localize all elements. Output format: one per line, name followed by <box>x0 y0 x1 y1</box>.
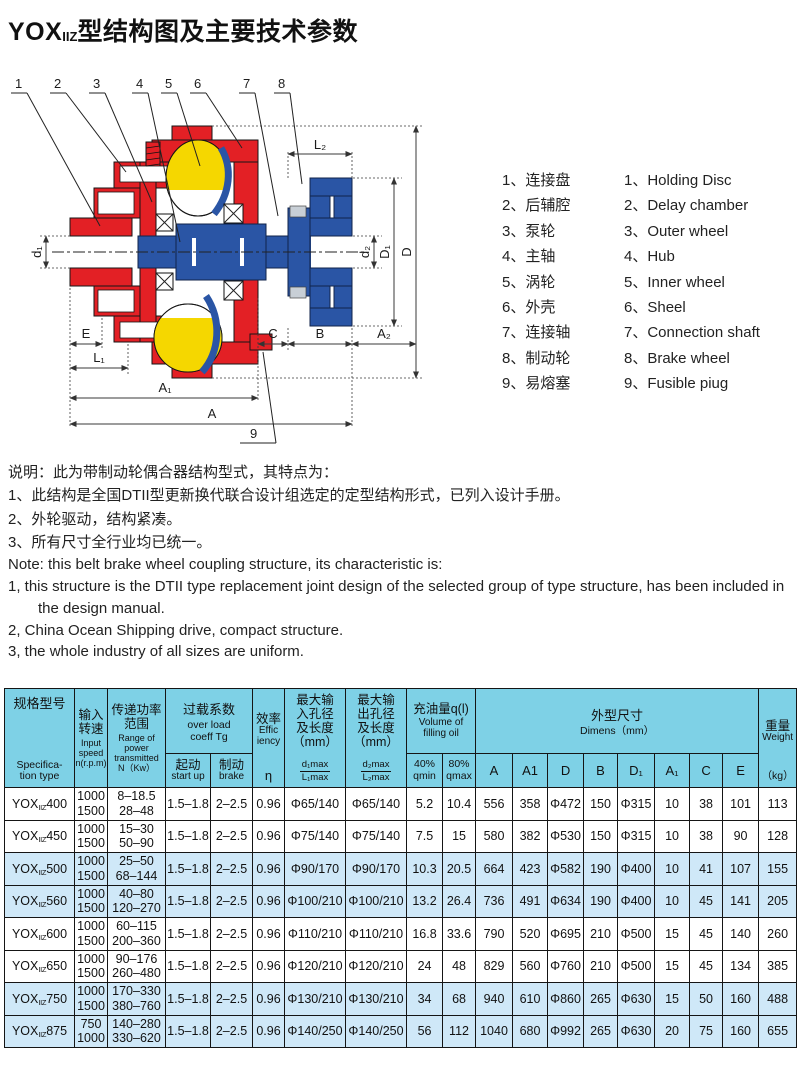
data-cell: 40–80 120–270 <box>108 885 166 918</box>
data-cell: 210 <box>584 950 618 983</box>
data-cell: 190 <box>584 885 618 918</box>
subcol-dim-C: C <box>690 754 723 788</box>
data-cell: Φ65/140 <box>285 788 346 821</box>
data-cell: 8–18.5 28–48 <box>108 788 166 821</box>
callout-5: 5 <box>165 76 172 91</box>
model-cell: YOXIIZ450 <box>5 820 75 853</box>
col-header-oil-volume: 充油量q(l)Volume of filling oil <box>407 689 476 754</box>
data-cell: 488 <box>759 983 797 1016</box>
data-cell: 1.5–1.8 <box>166 983 211 1016</box>
data-cell: 2–2.5 <box>211 788 253 821</box>
legend-grid: 1、连接盘1、Holding Disc2、后辅腔2、Delay chamber3… <box>502 169 798 398</box>
data-cell: 2–2.5 <box>211 983 253 1016</box>
callout-2: 2 <box>54 76 61 91</box>
note-en-line: Note: this belt brake wheel coupling str… <box>8 554 796 576</box>
data-cell: Φ110/210 <box>285 918 346 951</box>
data-cell: 260 <box>759 918 797 951</box>
subcol-brake: 制动brake <box>211 754 253 788</box>
data-cell: 107 <box>723 853 759 886</box>
table-row: YOXIIZ4001000 15008–18.5 28–481.5–1.82–2… <box>5 788 797 821</box>
model-cell: YOXIIZ875 <box>5 1015 75 1048</box>
data-cell: 1000 1500 <box>75 918 108 951</box>
data-cell: Φ100/210 <box>346 885 407 918</box>
dim-label-D1: D₁ <box>377 245 392 259</box>
callout-7: 7 <box>243 76 250 91</box>
data-cell: 140 <box>723 918 759 951</box>
note-zh-line: 说明：此为带制动轮偶合器结构型式，其特点为： <box>8 461 796 484</box>
data-cell: Φ630 <box>618 983 655 1016</box>
data-cell: 556 <box>476 788 513 821</box>
legend-item-zh: 1、连接盘 <box>502 169 624 194</box>
table-row: YOXIIZ5601000 150040–80 120–2701.5–1.82–… <box>5 885 797 918</box>
data-cell: 1.5–1.8 <box>166 820 211 853</box>
data-cell: 5.2 <box>407 788 443 821</box>
data-cell: 141 <box>723 885 759 918</box>
data-cell: Φ860 <box>548 983 584 1016</box>
data-cell: 155 <box>759 853 797 886</box>
data-cell: Φ760 <box>548 950 584 983</box>
data-cell: 25–50 68–144 <box>108 853 166 886</box>
data-cell: 1000 1500 <box>75 885 108 918</box>
note-zh-line: 3、所有尺寸全行业均已统一。 <box>8 531 796 554</box>
page-title: YOXIIZ型结构图及主要技术参数 <box>8 12 358 48</box>
data-cell: 13.2 <box>407 885 443 918</box>
data-cell: 0.96 <box>253 983 285 1016</box>
subcol-dim-A1: A1 <box>513 754 548 788</box>
data-cell: 664 <box>476 853 513 886</box>
data-cell: 34 <box>407 983 443 1016</box>
data-cell: 190 <box>584 853 618 886</box>
data-cell: Φ500 <box>618 950 655 983</box>
data-cell: 0.96 <box>253 853 285 886</box>
data-cell: 15 <box>655 983 690 1016</box>
data-cell: Φ400 <box>618 853 655 886</box>
legend-item-zh: 5、涡轮 <box>502 271 624 296</box>
data-cell: 829 <box>476 950 513 983</box>
data-cell: 38 <box>690 788 723 821</box>
model-cell: YOXIIZ400 <box>5 788 75 821</box>
legend-item-zh: 2、后辅腔 <box>502 194 624 219</box>
callout-3: 3 <box>93 76 100 91</box>
data-cell: 10 <box>655 853 690 886</box>
data-cell: Φ500 <box>618 918 655 951</box>
model-cell: YOXIIZ750 <box>5 983 75 1016</box>
data-cell: 15 <box>655 918 690 951</box>
data-cell: 50 <box>690 983 723 1016</box>
data-cell: 0.96 <box>253 885 285 918</box>
data-cell: Φ695 <box>548 918 584 951</box>
legend-item-en: 6、Sheel <box>624 296 798 321</box>
data-cell: 48 <box>443 950 476 983</box>
data-cell: 150 <box>584 788 618 821</box>
data-cell: 45 <box>690 950 723 983</box>
subcol-oil-80: 80% qmax <box>443 754 476 788</box>
data-cell: 610 <box>513 983 548 1016</box>
data-cell: 680 <box>513 1015 548 1048</box>
table-row: YOXIIZ7501000 1500170–330 380–7601.5–1.8… <box>5 983 797 1016</box>
data-cell: 10.4 <box>443 788 476 821</box>
data-cell: 1.5–1.8 <box>166 788 211 821</box>
data-cell: 382 <box>513 820 548 853</box>
data-cell: 38 <box>690 820 723 853</box>
dim-label-D: D <box>399 247 414 256</box>
data-cell: 15 <box>443 820 476 853</box>
data-cell: 265 <box>584 1015 618 1048</box>
data-cell: Φ630 <box>618 1015 655 1048</box>
dim-label-A: A <box>208 406 217 421</box>
data-cell: 7.5 <box>407 820 443 853</box>
data-cell: 1000 1500 <box>75 983 108 1016</box>
subcol-start: 起动start up <box>166 754 211 788</box>
data-cell: Φ130/210 <box>285 983 346 1016</box>
legend-item-en: 9、Fusible piug <box>624 372 798 397</box>
data-cell: 101 <box>723 788 759 821</box>
coupling-diagram-svg: d₁ L₂ d₂ D₁ D E C B A₂ L₁ A₁ A 1 2 3 4 5… <box>0 66 500 464</box>
data-cell: 90–176 260–480 <box>108 950 166 983</box>
data-cell: 560 <box>513 950 548 983</box>
data-cell: 385 <box>759 950 797 983</box>
data-cell: Φ90/170 <box>346 853 407 886</box>
dim-label-d1: d₁ <box>29 246 44 258</box>
data-cell: Φ120/210 <box>285 950 346 983</box>
data-cell: 1000 1500 <box>75 820 108 853</box>
legend-item-en: 7、Connection shaft <box>624 321 798 346</box>
col-header-max-output-bore: 最大输 出孔径 及长度 （mm）d₂maxL₂max <box>346 689 407 788</box>
oil-chamber-bottom <box>154 296 222 372</box>
data-cell: 358 <box>513 788 548 821</box>
table-row: YOXIIZ5001000 150025–50 68–1441.5–1.82–2… <box>5 853 797 886</box>
model-cell: YOXIIZ650 <box>5 950 75 983</box>
col-header-weight: 重量Weight（kg） <box>759 689 797 788</box>
data-cell: 940 <box>476 983 513 1016</box>
data-cell: 15 <box>655 950 690 983</box>
data-cell: 24 <box>407 950 443 983</box>
data-cell: 56 <box>407 1015 443 1048</box>
data-cell: Φ75/140 <box>285 820 346 853</box>
title-subscript: IIZ <box>62 29 77 44</box>
model-cell: YOXIIZ500 <box>5 853 75 886</box>
data-cell: Φ400 <box>618 885 655 918</box>
data-cell: Φ65/140 <box>346 788 407 821</box>
dim-label-C: C <box>268 326 277 341</box>
data-cell: 491 <box>513 885 548 918</box>
data-cell: 423 <box>513 853 548 886</box>
data-cell: 2–2.5 <box>211 853 253 886</box>
data-cell: Φ315 <box>618 820 655 853</box>
model-cell: YOXIIZ600 <box>5 918 75 951</box>
dim-label-d2: d₂ <box>357 246 372 258</box>
callout-6: 6 <box>194 76 201 91</box>
subcol-dim-D: D <box>548 754 584 788</box>
table-row: YOXIIZ6501000 150090–176 260–4801.5–1.82… <box>5 950 797 983</box>
data-cell: 10 <box>655 885 690 918</box>
table-row: YOXIIZ875750 1000140–280 330–6201.5–1.82… <box>5 1015 797 1048</box>
data-cell: 1.5–1.8 <box>166 1015 211 1048</box>
data-cell: 10 <box>655 788 690 821</box>
subcol-dim-A: A <box>476 754 513 788</box>
data-cell: 2–2.5 <box>211 950 253 983</box>
data-cell: Φ582 <box>548 853 584 886</box>
data-cell: 520 <box>513 918 548 951</box>
data-cell: Φ530 <box>548 820 584 853</box>
subcol-dim-B: B <box>584 754 618 788</box>
legend-item-en: 2、Delay chamber <box>624 194 798 219</box>
data-cell: 1.5–1.8 <box>166 918 211 951</box>
callout-4: 4 <box>136 76 143 91</box>
col-header-spec: 规格型号Specifica- tion type <box>5 689 75 788</box>
note-zh-line: 2、外轮驱动，结构紧凑。 <box>8 508 796 531</box>
data-cell: 750 1000 <box>75 1015 108 1048</box>
data-cell: 45 <box>690 918 723 951</box>
legend-item-zh: 3、泵轮 <box>502 220 624 245</box>
subcol-dim-D1: D₁ <box>618 754 655 788</box>
data-cell: 15–30 50–90 <box>108 820 166 853</box>
dim-label-L2: L₂ <box>314 137 326 152</box>
data-cell: Φ75/140 <box>346 820 407 853</box>
data-cell: Φ110/210 <box>346 918 407 951</box>
spec-table: 规格型号Specifica- tion type 输入 转速Input spee… <box>4 688 797 1048</box>
data-cell: 0.96 <box>253 918 285 951</box>
legend-item-en: 1、Holding Disc <box>624 169 798 194</box>
subcol-dim-E: E <box>723 754 759 788</box>
data-cell: 2–2.5 <box>211 885 253 918</box>
legend-item-zh: 4、主轴 <box>502 245 624 270</box>
note-en-line: 1, this structure is the DTII type repla… <box>8 576 796 620</box>
legend-item-zh: 7、连接轴 <box>502 321 624 346</box>
data-cell: 210 <box>584 918 618 951</box>
data-cell: 16.8 <box>407 918 443 951</box>
data-cell: 2–2.5 <box>211 1015 253 1048</box>
data-cell: 1.5–1.8 <box>166 885 211 918</box>
data-cell: 1.5–1.8 <box>166 853 211 886</box>
data-cell: 2–2.5 <box>211 820 253 853</box>
data-cell: 0.96 <box>253 820 285 853</box>
data-cell: 160 <box>723 983 759 1016</box>
data-cell: 45 <box>690 885 723 918</box>
data-cell: 113 <box>759 788 797 821</box>
data-cell: 0.96 <box>253 1015 285 1048</box>
data-cell: 655 <box>759 1015 797 1048</box>
data-cell: 1000 1500 <box>75 788 108 821</box>
data-cell: 1000 1500 <box>75 853 108 886</box>
data-cell: Φ634 <box>548 885 584 918</box>
data-cell: 205 <box>759 885 797 918</box>
data-cell: 0.96 <box>253 950 285 983</box>
data-cell: Φ130/210 <box>346 983 407 1016</box>
subcol-oil-40: 40% qmin <box>407 754 443 788</box>
col-header-overload: 过载系数over load coeff Tg <box>166 689 253 754</box>
subcol-dim-A1-sub: A₁ <box>655 754 690 788</box>
data-cell: 1000 1500 <box>75 950 108 983</box>
col-header-max-input-bore: 最大输 入孔径 及长度 （mm）d₁maxL₁max <box>285 689 346 788</box>
data-cell: 2–2.5 <box>211 918 253 951</box>
legend-item-zh: 6、外壳 <box>502 296 624 321</box>
data-cell: 265 <box>584 983 618 1016</box>
data-cell: 90 <box>723 820 759 853</box>
data-cell: Φ90/170 <box>285 853 346 886</box>
data-cell: 736 <box>476 885 513 918</box>
legend-item-en: 5、Inner wheel <box>624 271 798 296</box>
data-cell: 60–115 200–360 <box>108 918 166 951</box>
dim-label-A1: A₁ <box>158 380 172 395</box>
data-cell: 41 <box>690 853 723 886</box>
legend-item-en: 3、Outer wheel <box>624 220 798 245</box>
dim-label-A2: A₂ <box>377 326 391 341</box>
callout-9: 9 <box>250 426 257 441</box>
dim-label-B: B <box>316 326 325 341</box>
oil-chamber-top <box>166 140 230 216</box>
data-cell: 10 <box>655 820 690 853</box>
col-header-dimensions: 外型尺寸Dimens（mm） <box>476 689 759 754</box>
callout-1: 1 <box>15 76 22 91</box>
data-cell: 26.4 <box>443 885 476 918</box>
data-cell: Φ100/210 <box>285 885 346 918</box>
data-cell: 0.96 <box>253 788 285 821</box>
data-cell: Φ315 <box>618 788 655 821</box>
data-cell: 170–330 380–760 <box>108 983 166 1016</box>
data-cell: 134 <box>723 950 759 983</box>
col-header-efficiency: 效率Effic iencyη <box>253 689 285 788</box>
data-cell: Φ992 <box>548 1015 584 1048</box>
col-header-speed: 输入 转速Input speed n(r.p.m) <box>75 689 108 788</box>
data-cell: Φ120/210 <box>346 950 407 983</box>
note-en-line: 3, the whole industry of all sizes are u… <box>8 641 796 663</box>
data-cell: 128 <box>759 820 797 853</box>
data-cell: 20.5 <box>443 853 476 886</box>
notes-block: 说明：此为带制动轮偶合器结构型式，其特点为： 1、此结构是全国DTII型更新换代… <box>8 461 796 663</box>
data-cell: 112 <box>443 1015 476 1048</box>
data-cell: 1040 <box>476 1015 513 1048</box>
spec-table-body: YOXIIZ4001000 15008–18.5 28–481.5–1.82–2… <box>5 788 797 1048</box>
data-cell: 1.5–1.8 <box>166 950 211 983</box>
coupling-cross-section-diagram: d₁ L₂ d₂ D₁ D E C B A₂ L₁ A₁ A 1 2 3 4 5… <box>0 66 500 464</box>
data-cell: 580 <box>476 820 513 853</box>
data-cell: 33.6 <box>443 918 476 951</box>
dim-label-E: E <box>82 326 91 341</box>
callout-8: 8 <box>278 76 285 91</box>
model-cell: YOXIIZ560 <box>5 885 75 918</box>
note-en-line: 2, China Ocean Shipping drive, compact s… <box>8 620 796 642</box>
legend-item-zh: 9、易熔塞 <box>502 372 624 397</box>
note-zh-line: 1、此结构是全国DTII型更新换代联合设计组选定的定型结构形式，已列入设计手册。 <box>8 484 796 507</box>
data-cell: 75 <box>690 1015 723 1048</box>
legend-item-en: 8、Brake wheel <box>624 347 798 372</box>
data-cell: 140–280 330–620 <box>108 1015 166 1048</box>
data-cell: 790 <box>476 918 513 951</box>
legend-item-en: 4、Hub <box>624 245 798 270</box>
data-cell: 160 <box>723 1015 759 1048</box>
data-cell: Φ140/250 <box>285 1015 346 1048</box>
table-row: YOXIIZ4501000 150015–30 50–901.5–1.82–2.… <box>5 820 797 853</box>
table-row: YOXIIZ6001000 150060–115 200–3601.5–1.82… <box>5 918 797 951</box>
legend-item-zh: 8、制动轮 <box>502 347 624 372</box>
catalog-page: { "colors":{"red":"#e32025","yellow":"#f… <box>0 0 800 1072</box>
data-cell: 20 <box>655 1015 690 1048</box>
data-cell: 10.3 <box>407 853 443 886</box>
dim-label-L1: L₁ <box>93 350 105 365</box>
data-cell: Φ140/250 <box>346 1015 407 1048</box>
data-cell: 68 <box>443 983 476 1016</box>
data-cell: 150 <box>584 820 618 853</box>
data-cell: Φ472 <box>548 788 584 821</box>
col-header-power: 传递功率 范围Range of power transmitted N（Kw） <box>108 689 166 788</box>
